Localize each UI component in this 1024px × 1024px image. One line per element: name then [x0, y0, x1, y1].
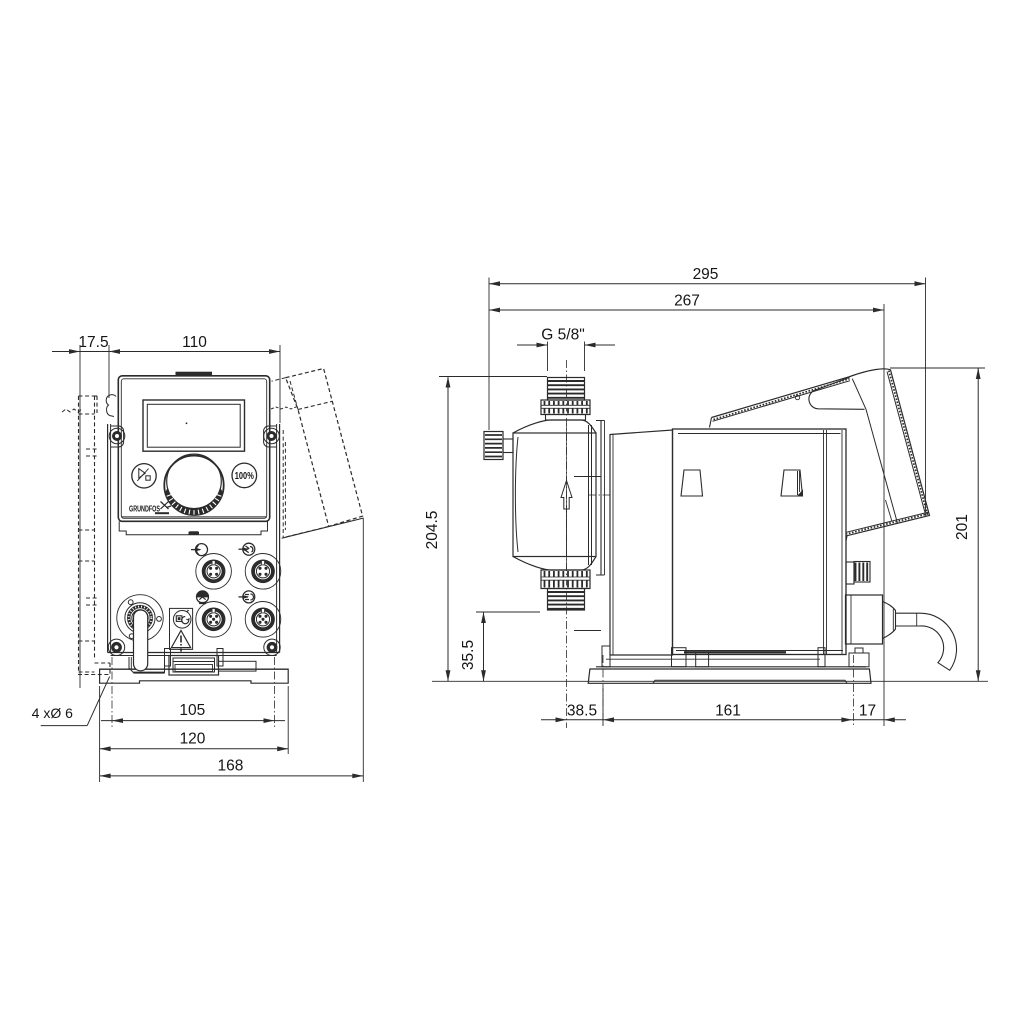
svg-text:161: 161	[715, 702, 741, 719]
svg-text:4 xØ 6: 4 xØ 6	[32, 705, 73, 721]
svg-text:17: 17	[859, 702, 876, 719]
svg-text:120: 120	[180, 730, 206, 747]
svg-text:35.5: 35.5	[460, 640, 477, 670]
svg-text:GRUNDFOS: GRUNDFOS	[129, 505, 160, 514]
svg-text:17.5: 17.5	[78, 334, 108, 351]
svg-text:38.5: 38.5	[567, 702, 597, 719]
svg-text:168: 168	[217, 757, 243, 774]
svg-text:110: 110	[182, 334, 207, 351]
svg-text:201: 201	[954, 514, 971, 540]
svg-text:105: 105	[179, 702, 205, 719]
svg-text:295: 295	[693, 266, 719, 283]
svg-text:100%: 100%	[235, 471, 254, 482]
svg-text:204.5: 204.5	[424, 511, 441, 550]
svg-text:G 5/8": G 5/8"	[541, 327, 584, 344]
svg-text:267: 267	[674, 293, 700, 310]
